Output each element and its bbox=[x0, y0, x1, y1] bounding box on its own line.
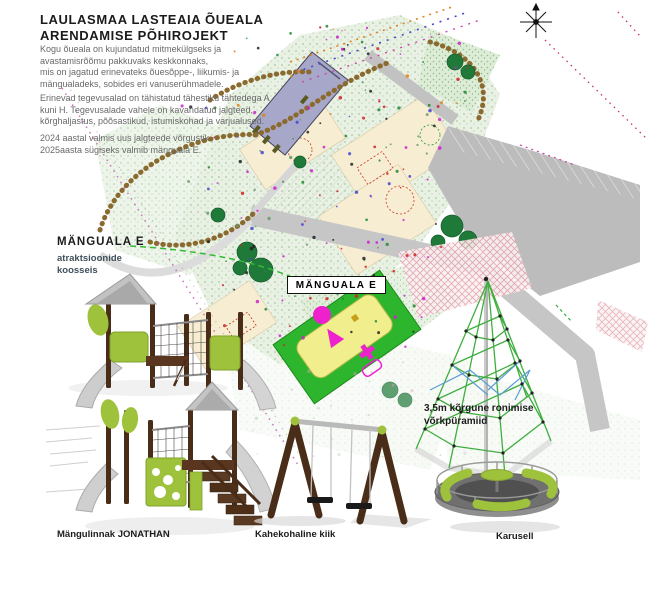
left-note-subtitle: atraktsioonide koosseis bbox=[57, 253, 122, 277]
project-title-line2: ARENDAMISE PÕHIROJEKT bbox=[40, 28, 228, 44]
zones-paragraph: Erinevad tegevusalad on tähistatud tähes… bbox=[40, 93, 280, 128]
equipment-label-swing: Kahekohaline kiik bbox=[255, 529, 335, 540]
left-note-title: MÄNGUALA E bbox=[57, 236, 145, 248]
rope-pyramid-render bbox=[416, 277, 551, 476]
equipment-label-carousel: Karusell bbox=[496, 531, 534, 542]
pyramid-note: 3,5m kõrgune ronimise võrkpüramiid bbox=[424, 402, 533, 428]
jonathan-upper-render bbox=[68, 274, 276, 410]
intro-paragraph: Kogu õueala on kujundatud mitmekülgseks … bbox=[40, 44, 280, 90]
project-title-line1: LAULASMAA LASTEAIA ÕUEALA bbox=[40, 12, 263, 28]
project-sheet: LAULASMAA LASTEAIA ÕUEALA ARENDAMISE PÕH… bbox=[0, 0, 650, 596]
swing-render bbox=[254, 417, 432, 529]
jonathan-lower-render bbox=[76, 382, 276, 535]
timeline-paragraph: 2024 aastal valmis uus jalgteede võrgust… bbox=[40, 133, 280, 156]
carousel-render bbox=[435, 462, 560, 533]
equipment-label-jonathan: Mängulinnak JONATHAN bbox=[57, 529, 170, 540]
map-zone-label: MÄNGUALA E bbox=[287, 276, 386, 294]
